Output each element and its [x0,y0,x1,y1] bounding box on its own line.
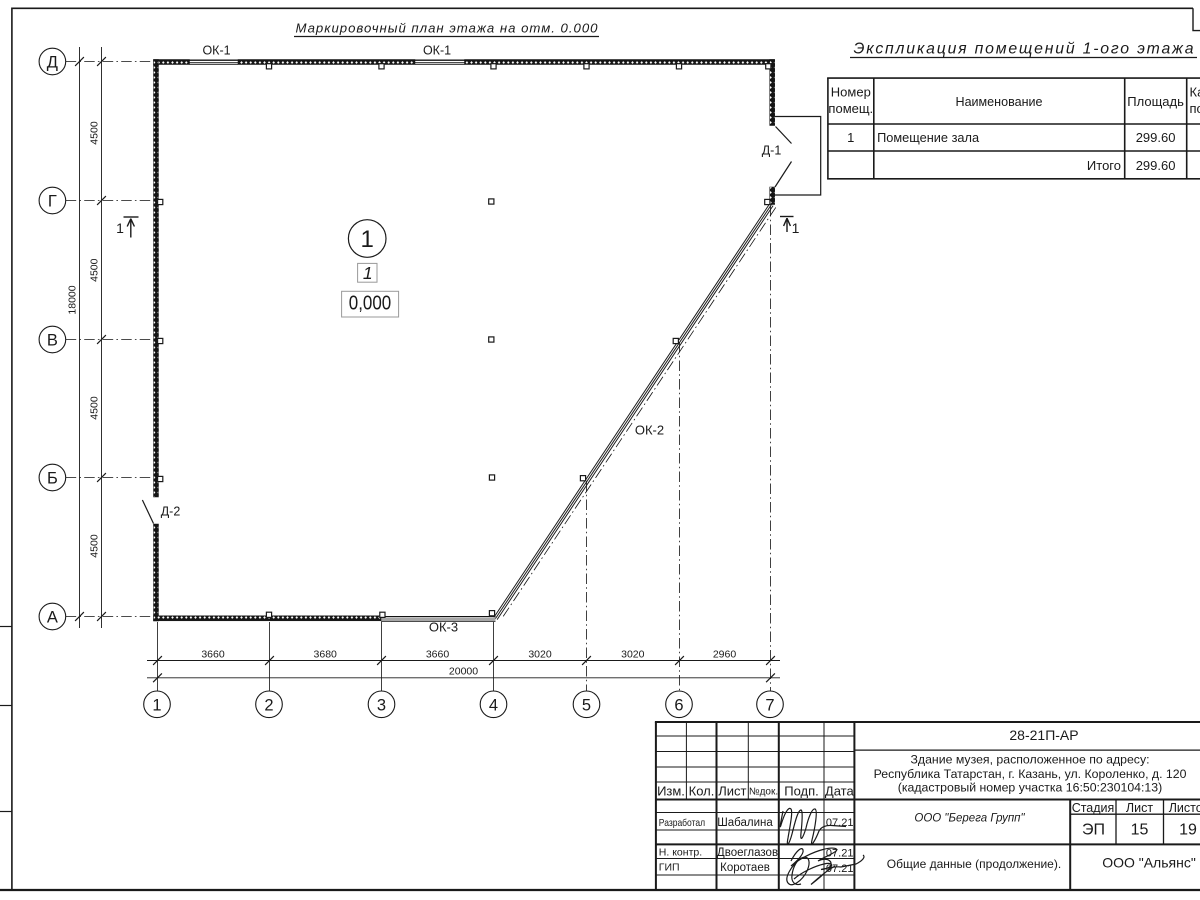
svg-text:помещ.: помещ. [828,101,873,116]
svg-text:Двоеглазов: Двоеглазов [717,847,778,859]
svg-text:Общие данные (продолжение).: Общие данные (продолжение). [887,857,1061,871]
svg-text:299.60: 299.60 [1136,158,1176,173]
svg-text:1: 1 [152,696,161,714]
svg-text:6: 6 [674,696,683,714]
svg-text:Ка: Ка [1190,85,1200,100]
svg-text:Маркировочный план этажа на от: Маркировочный план этажа на отм. 0.000 [296,21,599,36]
svg-text:4500: 4500 [88,396,100,420]
svg-text:Помещение зала: Помещение зала [877,130,980,145]
svg-text:Подп.: Подп. [784,784,819,799]
svg-text:Итого: Итого [1087,158,1121,173]
svg-text:1: 1 [792,220,800,236]
svg-text:Изм.: Изм. [657,784,685,799]
svg-text:ГИП: ГИП [659,862,680,874]
svg-text:Республика Татарстан, г. Казан: Республика Татарстан, г. Казань, ул. Кор… [874,767,1187,781]
svg-text:7: 7 [765,696,774,714]
svg-text:Листов: Листов [1169,801,1200,815]
svg-text:Д-1: Д-1 [762,144,782,158]
svg-text:18000: 18000 [67,285,79,314]
svg-text:ОК-3: ОК-3 [429,620,458,635]
svg-text:Наименование: Наименование [956,94,1043,109]
svg-text:по: по [1190,101,1200,116]
svg-text:ОК-1: ОК-1 [423,44,451,58]
svg-text:4: 4 [489,696,498,714]
svg-text:20000: 20000 [449,666,478,678]
svg-text:1: 1 [363,263,373,283]
svg-text:Кол.: Кол. [689,784,715,799]
svg-text:ЭП: ЭП [1082,822,1105,839]
svg-text:Стадия: Стадия [1072,801,1115,815]
svg-text:Б: Б [47,470,58,488]
svg-text:4500: 4500 [88,534,100,558]
svg-text:Разработал: Разработал [659,817,705,829]
svg-text:2960: 2960 [713,648,737,660]
svg-text:ОК-1: ОК-1 [202,44,230,58]
svg-text:28-21П-АР: 28-21П-АР [1009,727,1078,743]
svg-text:Дата: Дата [825,784,855,799]
svg-text:19: 19 [1179,822,1197,839]
svg-text:07.21: 07.21 [826,848,854,860]
svg-text:В: В [47,332,58,350]
svg-text:4500: 4500 [88,258,100,282]
svg-text:3660: 3660 [201,648,225,660]
svg-text:1: 1 [361,226,374,253]
svg-text:ООО "Берега Групп": ООО "Берега Групп" [914,813,1025,825]
svg-text:Лист: Лист [718,784,746,799]
svg-text:1: 1 [116,220,124,236]
svg-text:Лист: Лист [1126,801,1153,815]
svg-text:3660: 3660 [426,648,450,660]
svg-text:2: 2 [264,696,273,714]
svg-text:Здание музея, расположенное по: Здание музея, расположенное по адресу: [910,752,1149,766]
svg-text:Г: Г [48,193,57,211]
svg-text:07.21: 07.21 [826,817,854,829]
svg-text:5: 5 [582,696,591,714]
svg-text:(кадастровый номер участка 16:: (кадастровый номер участка 16:50:230104:… [898,781,1162,795]
svg-text:ОК-2: ОК-2 [635,423,664,438]
svg-text:3020: 3020 [621,648,645,660]
svg-text:3680: 3680 [314,648,338,660]
svg-text:3020: 3020 [528,648,552,660]
svg-text:1: 1 [847,130,854,145]
svg-text:Номер: Номер [831,85,871,100]
svg-text:4500: 4500 [88,121,100,145]
svg-text:Д: Д [47,54,58,72]
svg-text:Площадь: Площадь [1127,94,1184,109]
svg-text:Д-2: Д-2 [161,505,181,519]
svg-text:Шабалина: Шабалина [717,817,773,829]
svg-text:Н. контр.: Н. контр. [659,847,702,859]
svg-text:Коротаев: Коротаев [720,862,770,874]
svg-text:№док.: №док. [749,787,778,798]
svg-text:15: 15 [1131,822,1149,839]
svg-text:299.60: 299.60 [1136,130,1176,145]
svg-text:3: 3 [377,696,386,714]
svg-text:А: А [47,609,58,627]
svg-text:0,000: 0,000 [349,291,391,314]
svg-text:ООО "Альянс": ООО "Альянс" [1102,854,1196,870]
